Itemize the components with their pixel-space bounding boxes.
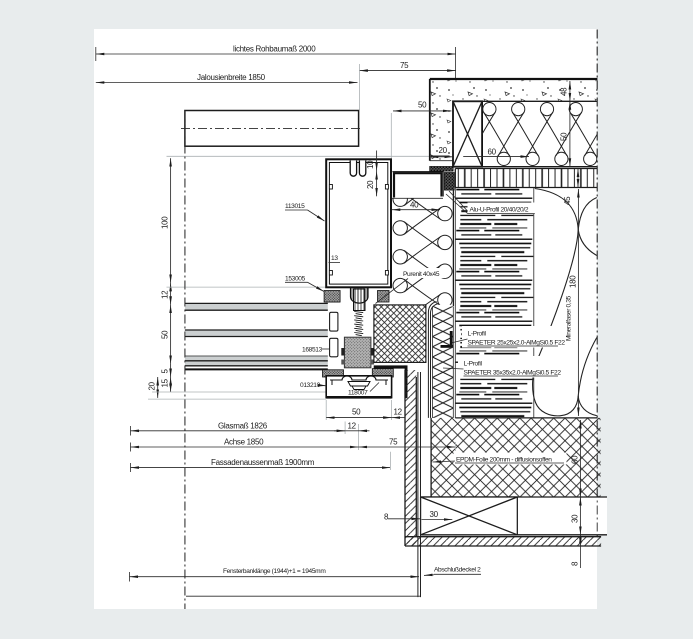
svg-text:153005: 153005 (285, 276, 306, 283)
svg-text:Jalousienbreite 1850: Jalousienbreite 1850 (197, 73, 266, 82)
svg-text:20: 20 (366, 180, 375, 189)
svg-text:013210: 013210 (300, 382, 321, 389)
svg-text:40: 40 (410, 201, 419, 210)
svg-text:15: 15 (161, 378, 170, 387)
svg-text:60: 60 (570, 455, 579, 464)
svg-text:75: 75 (389, 438, 398, 447)
svg-text:50: 50 (560, 132, 569, 141)
svg-text:L-Profil: L-Profil (468, 331, 487, 338)
svg-text:48: 48 (560, 87, 569, 96)
svg-text:50: 50 (161, 330, 170, 339)
svg-text:12: 12 (348, 421, 357, 430)
svg-text:180: 180 (568, 275, 577, 288)
svg-text:60: 60 (488, 148, 497, 157)
svg-text:20: 20 (148, 381, 157, 390)
svg-text:118007: 118007 (348, 390, 368, 397)
svg-text:Fassadenaussenmaß 1900mm: Fassadenaussenmaß 1900mm (211, 458, 315, 467)
svg-text:30: 30 (430, 510, 439, 519)
svg-text:50: 50 (418, 101, 427, 110)
svg-text:45: 45 (563, 196, 572, 205)
svg-text:168513: 168513 (302, 347, 323, 354)
svg-text:L-Profil: L-Profil (464, 361, 483, 368)
svg-text:Fensterbanklänge (1944)+1 =: Fensterbanklänge (1944)+1 = 1945mm (223, 568, 326, 575)
svg-text:SPAETER 35x35x2.0-AlMgSi0.5: SPAETER 35x35x2.0-AlMgSi0.5 F22 (464, 370, 562, 377)
svg-text:12: 12 (161, 290, 170, 299)
svg-text:113015: 113015 (285, 203, 305, 210)
svg-text:Abschlußdeckel 2: Abschlußdeckel 2 (434, 567, 481, 574)
svg-text:Glasmaß 1826: Glasmaß 1826 (218, 421, 268, 430)
svg-text:13: 13 (331, 255, 338, 262)
svg-text:Purenit 40x45: Purenit 40x45 (403, 271, 440, 278)
svg-text:lichtes Rohbaumaß 2000: lichtes Rohbaumaß 2000 (233, 45, 316, 54)
svg-text:SPAETER 25x25x2.0-AlMgSi0.5: SPAETER 25x25x2.0-AlMgSi0.5 F22 (468, 340, 566, 347)
svg-text:Alu-U-Profil 20/40/20/2: Alu-U-Profil 20/40/20/2 (470, 207, 529, 214)
svg-text:Mineralfaser 0,35: Mineralfaser 0,35 (566, 295, 573, 341)
svg-text:20: 20 (439, 146, 448, 155)
svg-text:EPDM-Folie 200mm - diffusio: EPDM-Folie 200mm - diffusionsoffen (456, 457, 552, 464)
svg-text:10: 10 (366, 160, 375, 169)
svg-text:12: 12 (394, 408, 403, 417)
svg-text:50: 50 (352, 408, 361, 417)
svg-text:30: 30 (570, 514, 579, 523)
svg-text:75: 75 (400, 61, 409, 70)
svg-text:100: 100 (161, 216, 170, 229)
svg-text:Achse 1850: Achse 1850 (224, 438, 264, 447)
